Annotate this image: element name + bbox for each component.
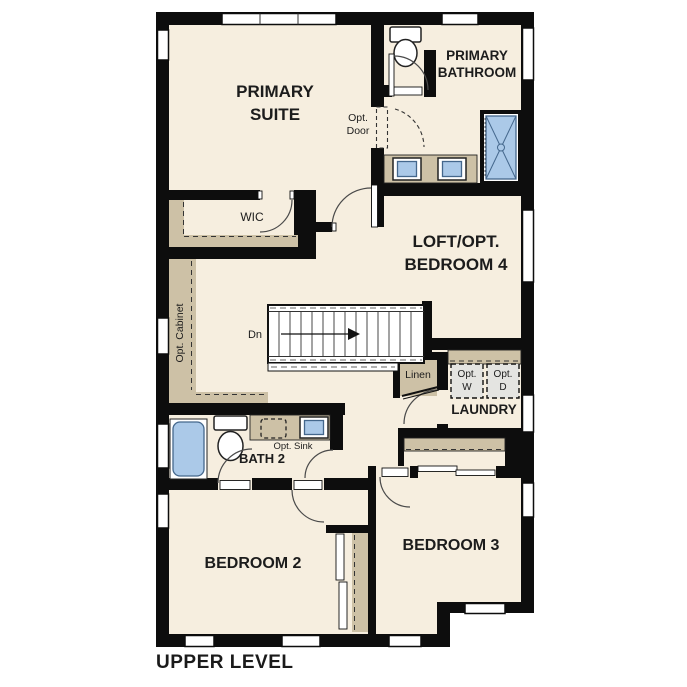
window [222,14,336,25]
window [185,636,214,647]
opt-door-label-line2: Door [347,125,370,137]
primary-vanity-sink-1 [393,158,421,180]
loft-label-line2: BEDROOM 4 [405,255,509,274]
window [442,14,478,25]
window [523,483,534,517]
bedroom2-label: BEDROOM 2 [205,555,302,572]
window [465,604,505,614]
bedroom3-label: BEDROOM 3 [403,537,500,554]
bedroom3-closet-slider [456,470,495,476]
primary-suite-label-line1: PRIMARY [236,82,314,101]
linen-label: Linen [405,369,431,381]
window [158,30,169,60]
bath2-tub [170,419,207,479]
wc-door-leaf [389,54,394,96]
opt-door-label-line1: Opt. [348,112,368,124]
window [389,636,421,647]
opt-washer-label-line2: W [462,382,472,393]
primary-vanity-sink-2 [438,158,466,180]
plan-title: UPPER LEVEL [156,652,293,673]
opt-dryer-label-line1: Opt. [494,369,513,380]
primary-bathroom-label-line1: PRIMARY [446,48,508,63]
wic-label: WIC [240,210,264,224]
window [158,424,169,468]
laundry-label: LAUNDRY [451,402,517,417]
primary-suite-label-line2: SUITE [250,105,300,124]
primary-bathroom-label-line2: BATHROOM [438,65,517,80]
bedroom2-closet-slider [339,582,347,629]
bedroom2-closet-slider [336,534,344,580]
window [282,636,320,647]
staircase [268,305,424,371]
opt-cabinet-label: Opt. Cabinet [174,303,186,362]
bedroom3-closet-slider [418,466,457,472]
opt-dryer-label-line2: D [499,382,506,393]
loft-label-line1: LOFT/OPT. [413,232,500,251]
floor-plan-page: PRIMARY SUITE PRIMARY BATHROOM WIC LOFT/… [0,0,687,687]
opt-sink-label: Opt. Sink [273,441,312,452]
window [523,395,534,432]
bath2-label: BATH 2 [239,451,285,466]
wic-side-shelf [169,200,184,235]
cabinet-return [169,392,268,403]
window [158,494,169,528]
primary-suite-door-leaf [372,185,378,227]
stair-direction-label: Dn [248,329,262,341]
bath2-sink [300,417,328,438]
laundry-counter [448,350,521,364]
opt-washer-label-line1: Opt. [458,369,477,380]
primary-shower [480,110,522,185]
window [523,28,534,80]
floor-plan-drawing: PRIMARY SUITE PRIMARY BATHROOM WIC LOFT/… [0,0,687,687]
window [523,210,534,282]
window [158,318,169,354]
